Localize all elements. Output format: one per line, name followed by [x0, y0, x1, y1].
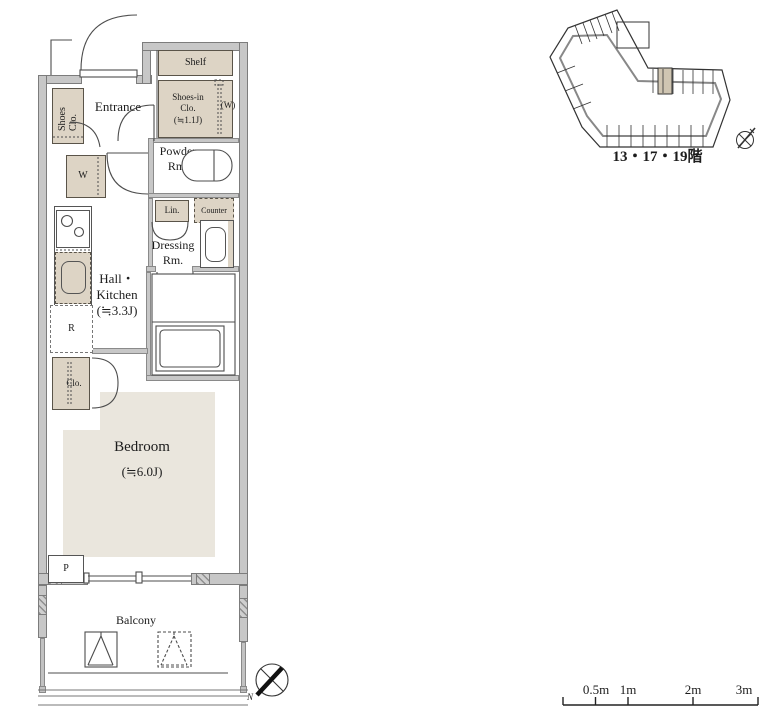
scalebar-ruler	[560, 695, 764, 711]
stove-burner-2	[75, 228, 84, 237]
exterior-stub-lines	[51, 40, 72, 75]
dressing-double-doors	[152, 222, 188, 240]
powder-door-arc	[118, 105, 154, 141]
keyplan-compass	[737, 128, 756, 149]
bath-unit-outline	[152, 274, 235, 375]
shoes-in-pipe-lines	[218, 84, 221, 135]
evacuation-hatch-solid	[85, 632, 117, 667]
closet-pipe-lines	[68, 362, 71, 405]
entrance-door-slab	[80, 70, 137, 77]
floorplan-page: Shoes Clo. Shelf Shoes-in Clo. (≒1.1J) (…	[0, 0, 764, 720]
keyplan-highlight-unit	[658, 68, 672, 94]
shoes-area-door-arc	[70, 122, 100, 147]
closet-double-doors	[92, 358, 118, 408]
evacuation-hatch-dashed	[158, 632, 191, 667]
shoes-in-pipe-symbol	[215, 80, 223, 85]
balcony-edge-lines	[38, 690, 248, 705]
toilet-bowl	[182, 150, 232, 181]
compass-main	[256, 664, 288, 696]
keyplan-caption: 13・17・19階	[595, 147, 720, 167]
entrance-door-arc	[81, 15, 137, 70]
stove-burner-1	[62, 216, 73, 227]
window-mullion	[136, 572, 142, 583]
plan-linework-layer	[0, 0, 320, 720]
keyplan-diagram	[545, 5, 764, 165]
hall-door-arc	[107, 153, 148, 194]
